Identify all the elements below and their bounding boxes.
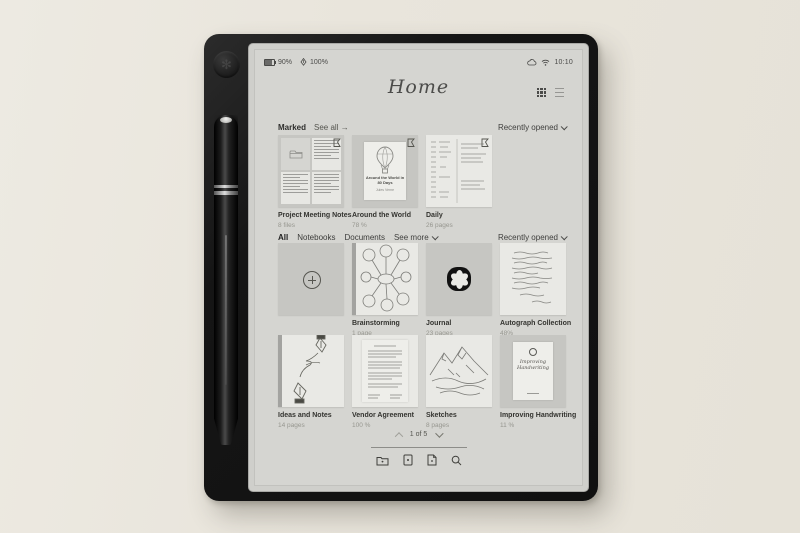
library-cards-row-2: Ideas and Notes 14 pages <box>278 335 566 429</box>
bottom-toolbar <box>255 454 582 466</box>
chevron-down-icon[interactable] <box>435 429 443 437</box>
pen-cap-star <box>220 117 232 123</box>
new-notebook-tile[interactable] <box>278 243 344 315</box>
card-title: Daily <box>426 212 492 220</box>
ring-logo-icon <box>529 348 537 356</box>
card-title: Journal <box>426 320 492 328</box>
grid-view-icon[interactable] <box>537 88 546 97</box>
thumbnail-planner-page <box>426 135 492 207</box>
cloud-icon <box>527 59 537 66</box>
tab-notebooks[interactable]: Notebooks <box>297 233 335 242</box>
card-meta: 8 pages <box>426 422 492 429</box>
library-sort-dropdown[interactable]: Recently opened <box>498 233 566 242</box>
card-title: Improving Handwriting <box>500 412 566 420</box>
toolbar-divider <box>371 447 467 448</box>
folder-icon[interactable] <box>376 455 389 466</box>
cover-author: Jules Verne <box>364 188 406 192</box>
see-all-link[interactable]: See all → <box>314 123 349 132</box>
montblanc-emblem: ✻ <box>213 51 240 78</box>
card-vendor-agreement[interactable]: Vendor Agreement 100 % <box>352 335 418 429</box>
montblanc-star-icon <box>447 267 471 291</box>
view-toggles <box>537 87 564 98</box>
search-icon[interactable] <box>451 455 462 466</box>
marked-flag-icon <box>407 138 415 147</box>
folder-doodle-icon <box>289 149 303 159</box>
chevron-down-icon <box>431 233 438 240</box>
thumbnail-handwriting-cover: Improving Handwriting <box>500 335 566 407</box>
montblanc-star-icon: ✻ <box>213 51 240 78</box>
device-screen: 90% 100% 10:10 Home Marked See all → Rec… <box>248 43 589 492</box>
card-title: Vendor Agreement <box>352 412 418 420</box>
card-improving-handwriting[interactable]: Improving Handwriting Improving Handwrit… <box>500 335 566 429</box>
cover-title: Improving Handwriting <box>513 359 553 371</box>
cover-title: Around the World in 80 Days <box>364 175 406 185</box>
card-around-the-world[interactable]: Around the World in 80 Days Jules Verne … <box>352 135 418 229</box>
stylus-pen <box>214 115 238 445</box>
page-indicator: 1 of 5 <box>410 431 428 438</box>
card-title: Sketches <box>426 412 492 420</box>
page-title: Home <box>255 76 582 98</box>
mountain-sketch <box>426 335 492 407</box>
chevron-up-icon[interactable] <box>394 432 402 440</box>
marked-section-title: Marked <box>278 123 306 132</box>
document-text-sketch <box>362 340 408 402</box>
card-title: Ideas and Notes <box>278 412 344 420</box>
thumbnail-autograph-page <box>500 243 566 315</box>
wifi-icon <box>541 59 550 66</box>
chevron-down-icon <box>561 123 568 130</box>
marked-section-header: Marked See all → Recently opened <box>278 123 566 132</box>
card-sketches[interactable]: Sketches 8 pages <box>426 335 492 429</box>
thumbnail-mindmap <box>352 243 418 315</box>
card-new-notebook[interactable] <box>278 243 344 337</box>
card-brainstorming[interactable]: Brainstorming 1 page <box>352 243 418 337</box>
chevron-down-icon <box>561 233 568 240</box>
thumbnail-mountain-sketch <box>426 335 492 407</box>
import-document-icon[interactable] <box>403 454 413 466</box>
stylus-icon <box>300 58 307 66</box>
clock: 10:10 <box>554 59 573 66</box>
mindmap-sketch <box>356 243 416 315</box>
card-journal[interactable]: Journal 23 pages <box>426 243 492 337</box>
see-more-dropdown[interactable]: See more <box>394 233 437 242</box>
new-document-icon[interactable] <box>427 454 437 466</box>
card-meta: 11 % <box>500 422 566 429</box>
status-bar: 90% 100% 10:10 <box>264 57 573 67</box>
card-meta: 14 pages <box>278 422 344 429</box>
card-meta: 78 % <box>352 222 418 229</box>
card-meta: 8 files <box>278 222 344 229</box>
battery-level: 90% <box>278 59 292 66</box>
marked-cards-row: Project Meeting Notes 8 files Around the… <box>278 135 492 229</box>
eink-tablet-device: ✻ 90% 100% 10:10 Home <box>204 34 598 501</box>
pen-nib-sketch <box>282 335 342 407</box>
library-cards-row-1: Brainstorming 1 page Journal 23 pages <box>278 243 566 337</box>
thumbnail-folder <box>278 135 344 207</box>
hot-air-balloon-illustration <box>364 145 406 175</box>
thumbnail-book-cover: Around the World in 80 Days Jules Verne <box>352 135 418 207</box>
thumbnail-document <box>352 335 418 407</box>
card-project-meeting-notes[interactable]: Project Meeting Notes 8 files <box>278 135 344 229</box>
card-daily[interactable]: Daily 26 pages <box>426 135 492 229</box>
marked-flag-icon <box>333 138 341 147</box>
card-ideas-and-notes[interactable]: Ideas and Notes 14 pages <box>278 335 344 429</box>
card-title: Brainstorming <box>352 320 418 328</box>
card-title: Project Meeting Notes <box>278 212 344 220</box>
card-meta: 100 % <box>352 422 418 429</box>
thumbnail-journal-cover <box>426 243 492 315</box>
card-title: Around the World <box>352 212 418 220</box>
handwriting-sketch <box>500 243 566 315</box>
home-screen: 90% 100% 10:10 Home Marked See all → Rec… <box>254 49 583 486</box>
card-meta: 26 pages <box>426 222 492 229</box>
plus-icon <box>303 271 321 289</box>
card-autograph-collection[interactable]: Autograph Collection 48% <box>500 243 566 337</box>
tab-documents[interactable]: Documents <box>344 233 384 242</box>
pen-battery-level: 100% <box>310 59 328 66</box>
page-navigation: 1 of 5 <box>255 431 582 438</box>
battery-icon <box>264 59 275 66</box>
thumbnail-pen-sketch <box>278 335 344 407</box>
card-title: Autograph Collection <box>500 320 566 328</box>
marked-sort-dropdown[interactable]: Recently opened <box>498 123 566 132</box>
marked-flag-icon <box>481 138 489 147</box>
list-view-icon[interactable] <box>555 87 564 98</box>
